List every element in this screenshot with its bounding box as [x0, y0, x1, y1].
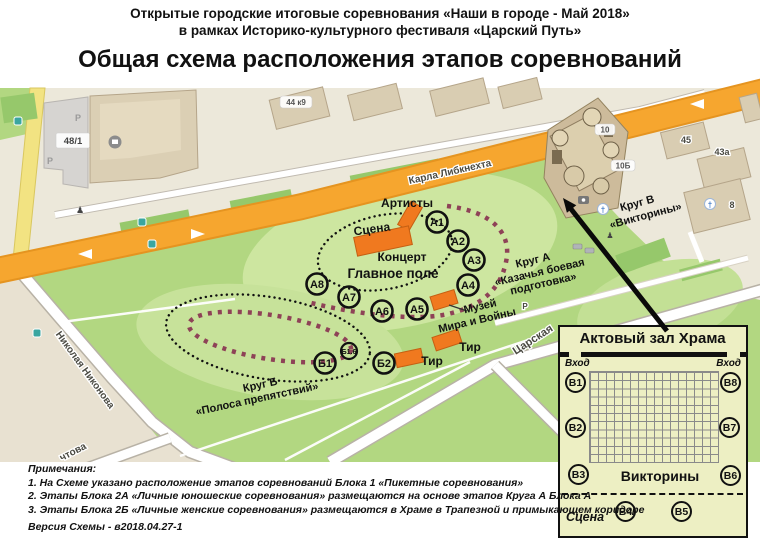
- label-concert: Концерт: [377, 250, 426, 264]
- inset-wall-main: [581, 352, 727, 357]
- building-museum-roof: [100, 99, 181, 160]
- note-item-3: 3. Этапы Блока 2Б «Личные женские соревн…: [28, 504, 644, 518]
- note-item-1: 1. На Схеме указано расположение этапов …: [28, 477, 644, 491]
- point-v7: В7: [719, 417, 740, 438]
- label-tir-lower: Тир: [421, 354, 443, 368]
- svg-text:♟: ♟: [76, 205, 84, 215]
- point-v5: В5: [671, 501, 692, 522]
- photo-icon-lens: [582, 198, 586, 202]
- inset-title: Актовый зал Храма: [560, 330, 745, 347]
- label-main-field: Главное поле: [348, 266, 439, 281]
- building-8-label: 8: [729, 200, 734, 210]
- label-tir-upper: Тир: [459, 340, 481, 354]
- building-43a-label: 43а: [714, 147, 730, 157]
- svg-text:†: †: [601, 206, 605, 215]
- svg-text:Б2: Б2: [377, 358, 391, 370]
- entrance-right-label: Вход: [716, 358, 741, 369]
- scheme-poster: { "header": { "line1": "Открытые городск…: [0, 0, 760, 540]
- building-45-label: 45: [681, 135, 691, 145]
- entrance-left-label: Вход: [565, 358, 590, 369]
- point-v2: В2: [565, 417, 586, 438]
- note-item-2: 2. Этапы Блока 2А «Личные юношеские соре…: [28, 490, 644, 504]
- scheme-version: Версия Схемы - в2018.04.27-1: [28, 521, 183, 533]
- svg-text:А6: А6: [375, 306, 389, 318]
- building-48-1-label: 48/1: [64, 136, 83, 147]
- museum-poi-glyph: [112, 140, 118, 145]
- svg-text:Б1: Б1: [318, 358, 332, 370]
- notes-heading: Примечания:: [28, 463, 644, 477]
- notes-block: Примечания: 1. На Схеме указано располож…: [28, 463, 644, 517]
- building-44k9-label: 44 к9: [286, 98, 306, 107]
- point-v8: В8: [720, 372, 741, 393]
- svg-text:А7: А7: [342, 292, 356, 304]
- inset-wall-right: [740, 352, 746, 357]
- svg-text:А5: А5: [410, 304, 424, 316]
- parking-icon: Р: [75, 113, 81, 123]
- svg-text:♟: ♟: [606, 231, 613, 240]
- svg-text:А4: А4: [461, 280, 476, 292]
- church-10b-label: 10Б: [616, 162, 631, 171]
- svg-text:†: †: [708, 201, 712, 210]
- parking-icon: Р: [47, 156, 53, 166]
- point-v1: В1: [565, 372, 586, 393]
- svg-text:А1: А1: [430, 217, 444, 229]
- svg-text:А8: А8: [310, 279, 324, 291]
- svg-text:А2: А2: [451, 236, 465, 248]
- parking-label-tsarskaya: Р: [522, 302, 528, 311]
- svg-text:Б1.6: Б1.6: [342, 349, 357, 356]
- church-10-label: 10: [601, 126, 610, 135]
- label-artists: Артисты: [381, 196, 433, 210]
- seating-grid: [589, 371, 719, 463]
- svg-text:А3: А3: [467, 255, 481, 267]
- inset-wall-left: [560, 352, 569, 357]
- point-v6: В6: [720, 465, 741, 486]
